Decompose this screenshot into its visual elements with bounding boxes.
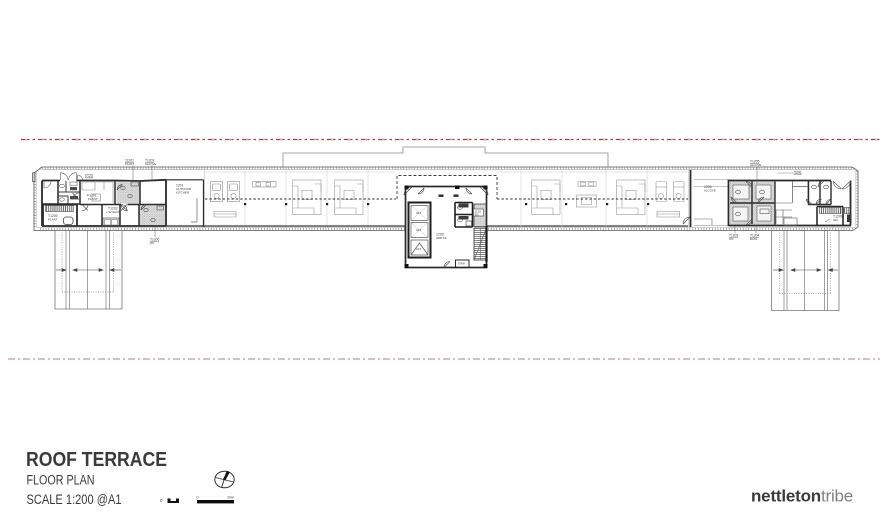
svg-text:PLANT: PLANT [125,162,134,166]
svg-text:SCALE 1:200 @A1: SCALE 1:200 @A1 [27,492,122,507]
svg-text:GAS: GAS [87,174,93,178]
svg-text:BATH: BATH [750,237,757,241]
svg-text:STAIR: STAIR [458,263,465,266]
svg-text:+ W.SHOP: + W.SHOP [106,210,121,214]
svg-text:FLOOR PLAN: FLOOR PLAN [27,473,95,488]
svg-text:LIFT: LIFT [416,247,422,251]
svg-text:KITCHEN: KITCHEN [176,191,189,195]
svg-text:ALCOVE: ALCOVE [704,188,716,192]
svg-text:0: 0 [197,496,199,500]
svg-text:WC: WC [150,241,155,245]
svg-text:10m: 10m [227,496,234,500]
svg-text:nettletontribe: nettletontribe [751,487,853,506]
svg-text:ALF: ALF [833,218,839,222]
svg-text:ARR.TE: ARR.TE [436,236,447,240]
svg-text:PLANT: PLANT [48,218,58,222]
svg-text:LIFT: LIFT [416,211,422,215]
svg-text:ALCOVE: ALCOVE [145,162,156,166]
svg-text:ROOF TERRACE: ROOF TERRACE [26,448,167,471]
svg-text:WC: WC [475,213,479,217]
svg-text:WC: WC [729,237,734,241]
svg-text:ALCOVE: ALCOVE [750,163,761,167]
svg-text:PLANT: PLANT [88,197,98,201]
svg-text:GAS: GAS [795,171,801,175]
svg-text:LIFT: LIFT [416,228,422,232]
